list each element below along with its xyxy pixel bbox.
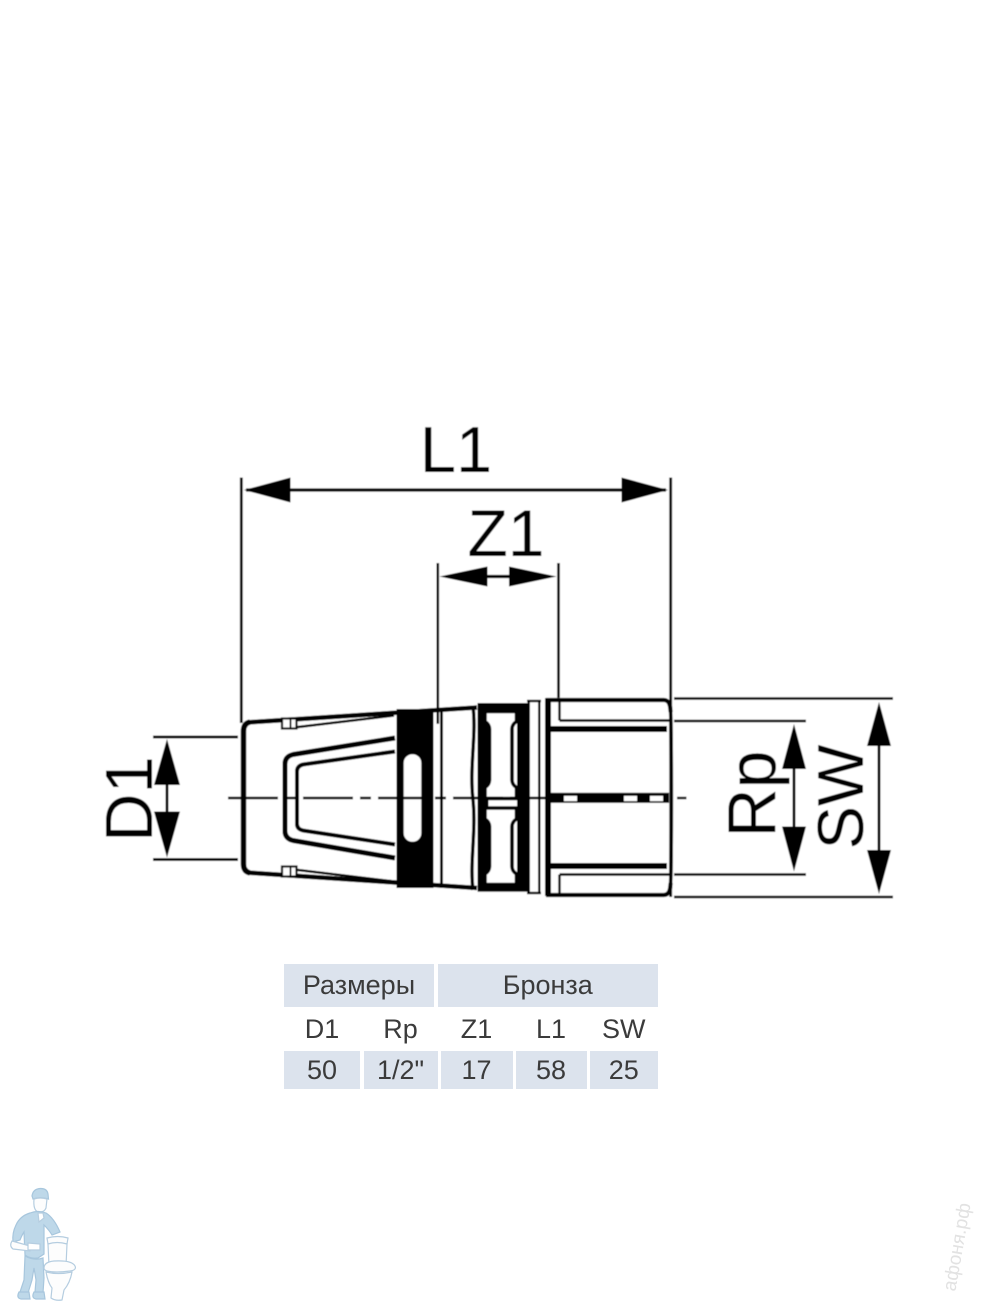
- svg-text:D1: D1: [92, 756, 167, 842]
- svg-text:Z1: Z1: [467, 496, 544, 570]
- svg-text:афоня.рф: афоня.рф: [940, 1201, 976, 1292]
- svg-text:Rp: Rp: [715, 751, 791, 838]
- svg-text:L1: L1: [420, 413, 492, 486]
- svg-text:SW: SW: [804, 744, 877, 849]
